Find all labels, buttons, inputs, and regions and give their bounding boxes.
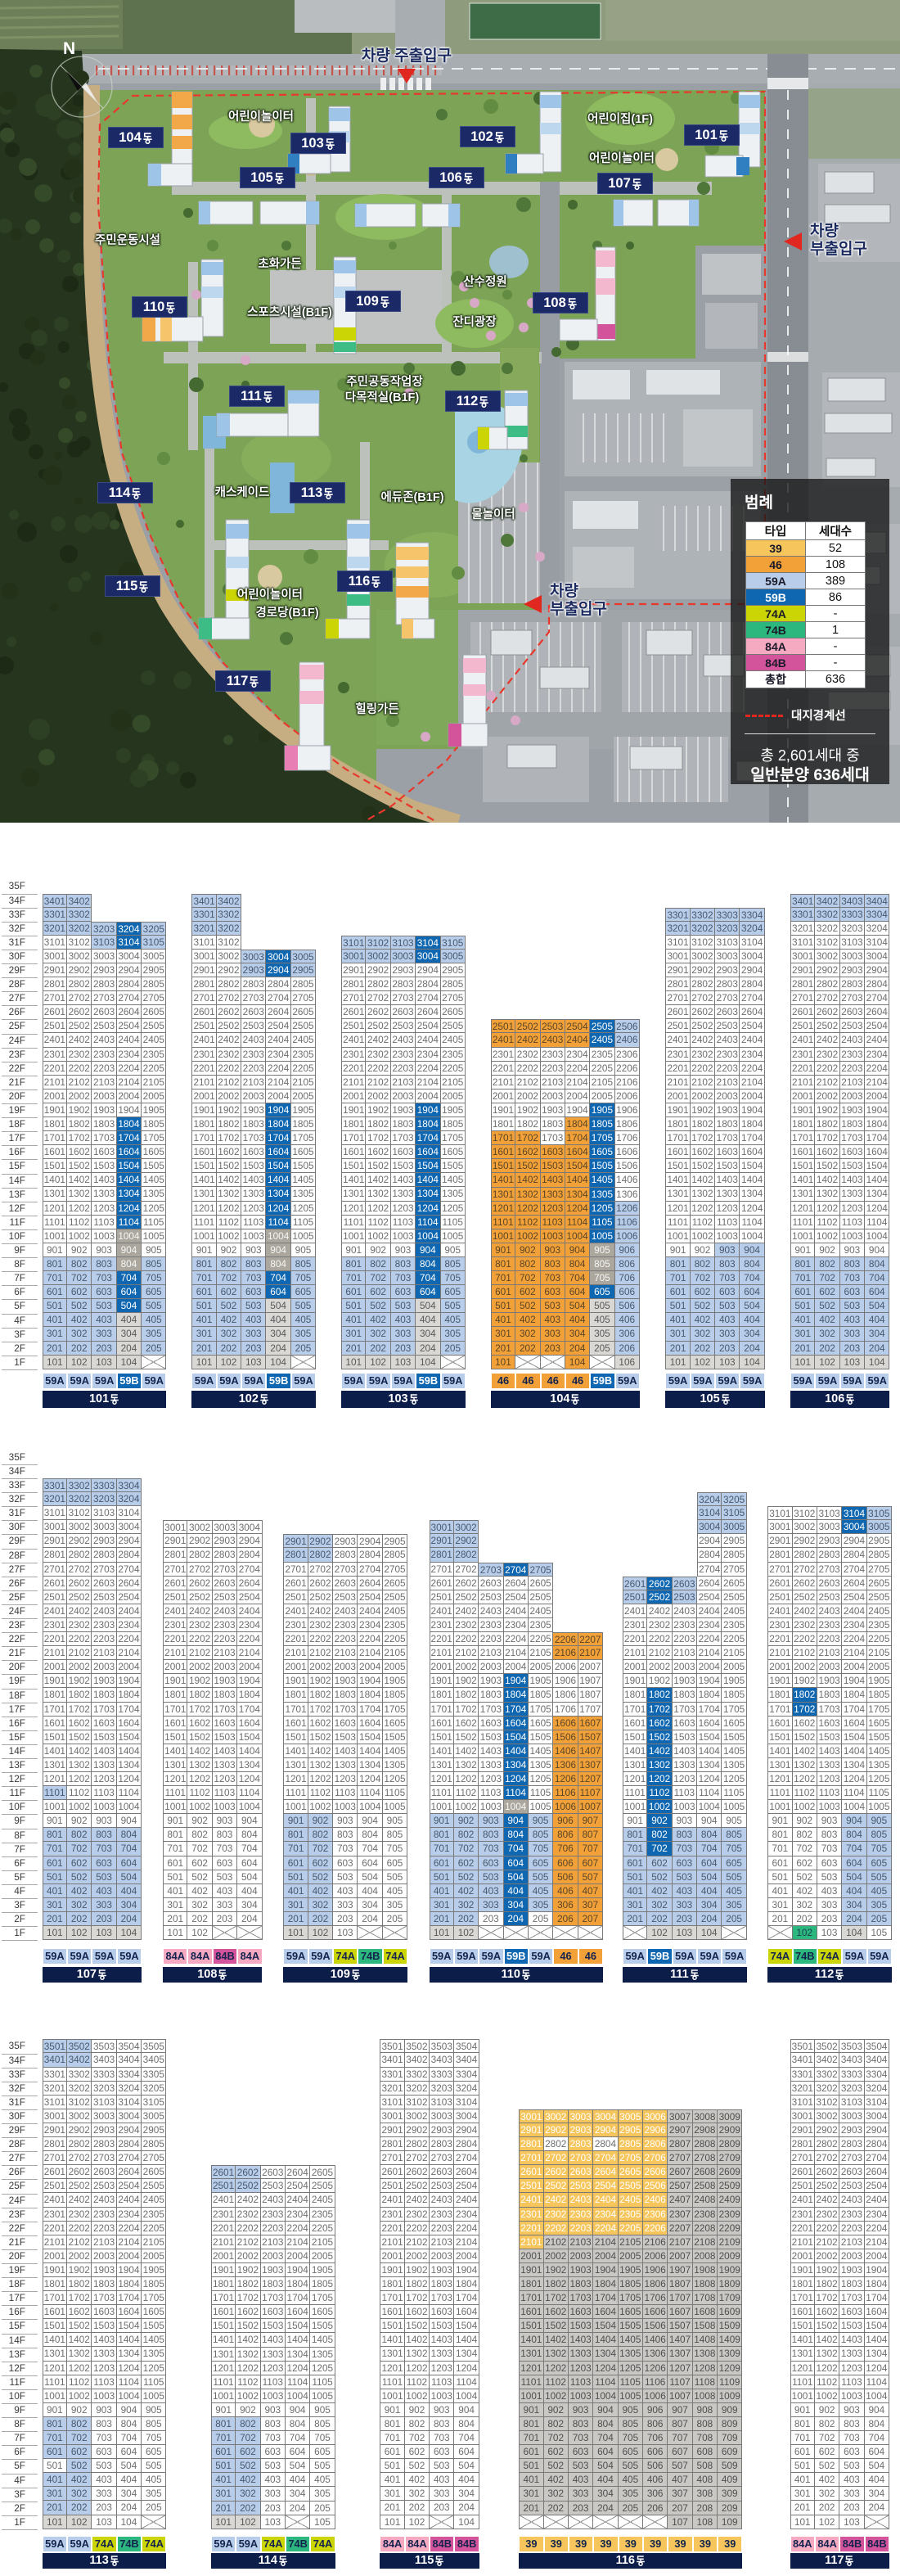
- svg-text:N: N: [63, 39, 75, 58]
